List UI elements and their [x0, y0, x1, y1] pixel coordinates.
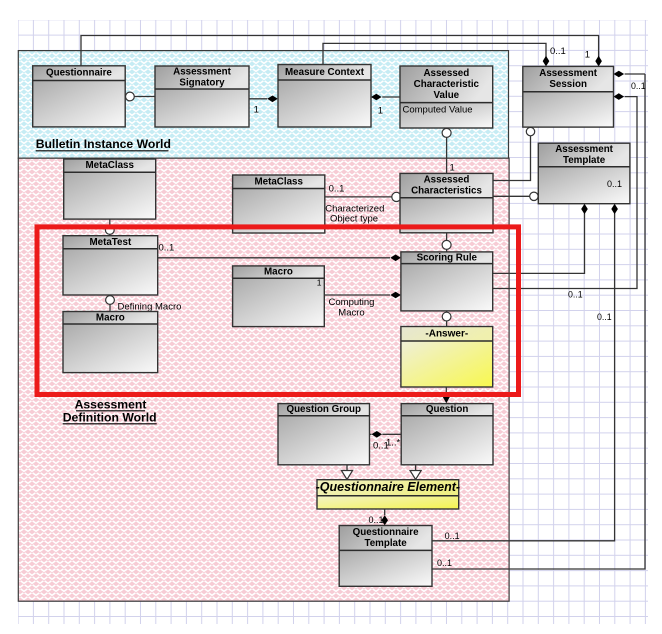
svg-text:MetaClass: MetaClass — [254, 176, 303, 187]
svg-text:Bulletin Instance World: Bulletin Instance World — [36, 137, 171, 151]
svg-text:Signatory: Signatory — [179, 78, 225, 89]
svg-text:Assessment: Assessment — [539, 68, 597, 79]
svg-text:Characteristics: Characteristics — [411, 186, 482, 197]
svg-text:Question: Question — [426, 404, 468, 415]
svg-text:Assessment: Assessment — [555, 144, 613, 155]
svg-text:0..1: 0..1 — [445, 531, 460, 541]
svg-text:Characteristic: Characteristic — [414, 79, 480, 90]
svg-text:Macro: Macro — [338, 308, 364, 319]
svg-text:Macro: Macro — [96, 312, 125, 323]
svg-text:Measure Context: Measure Context — [285, 67, 365, 78]
svg-text:Assessment: Assessment — [173, 67, 231, 78]
svg-text:Macro: Macro — [264, 267, 293, 278]
svg-text:1: 1 — [585, 50, 590, 61]
svg-text:0..1: 0..1 — [597, 312, 612, 322]
svg-text:-Answer-: -Answer- — [425, 328, 468, 339]
svg-text:Questionnaire: Questionnaire — [46, 68, 112, 79]
svg-text:Definition World: Definition World — [63, 410, 157, 424]
svg-text:Template: Template — [563, 155, 606, 166]
svg-text:0..1: 0..1 — [159, 243, 175, 254]
svg-text:Computing: Computing — [329, 297, 375, 308]
svg-text:Object type: Object type — [330, 214, 378, 225]
svg-text:Scoring Rule: Scoring Rule — [417, 252, 478, 263]
svg-text:Session: Session — [549, 79, 587, 90]
svg-text:Question Group: Question Group — [286, 404, 361, 415]
svg-text:Value: Value — [434, 90, 460, 101]
svg-text:Assessed: Assessed — [423, 68, 469, 79]
svg-text:1: 1 — [254, 105, 259, 116]
svg-text:Assessment: Assessment — [75, 397, 147, 411]
svg-text:MetaTest: MetaTest — [89, 237, 131, 248]
svg-text:Questionnaire: Questionnaire — [353, 527, 419, 538]
svg-text:1: 1 — [378, 106, 383, 117]
svg-text:MetaClass: MetaClass — [85, 160, 134, 171]
svg-text:1: 1 — [317, 278, 322, 288]
svg-text:0..1: 0..1 — [568, 290, 583, 300]
svg-text:1: 1 — [450, 163, 455, 174]
svg-text:0..1: 0..1 — [329, 184, 345, 195]
svg-text:-Questionnaire Element-: -Questionnaire Element- — [316, 480, 460, 494]
svg-text:Assessed: Assessed — [424, 175, 470, 186]
svg-text:Template: Template — [364, 538, 407, 549]
svg-text:1..*: 1..* — [386, 438, 401, 449]
svg-text:0..1: 0..1 — [369, 515, 384, 525]
svg-text:Computed Value: Computed Value — [403, 105, 473, 116]
svg-text:0..1: 0..1 — [607, 179, 622, 189]
svg-text:0..1: 0..1 — [550, 46, 566, 57]
svg-text:0..1: 0..1 — [631, 81, 646, 91]
svg-text:0..1: 0..1 — [437, 558, 452, 568]
